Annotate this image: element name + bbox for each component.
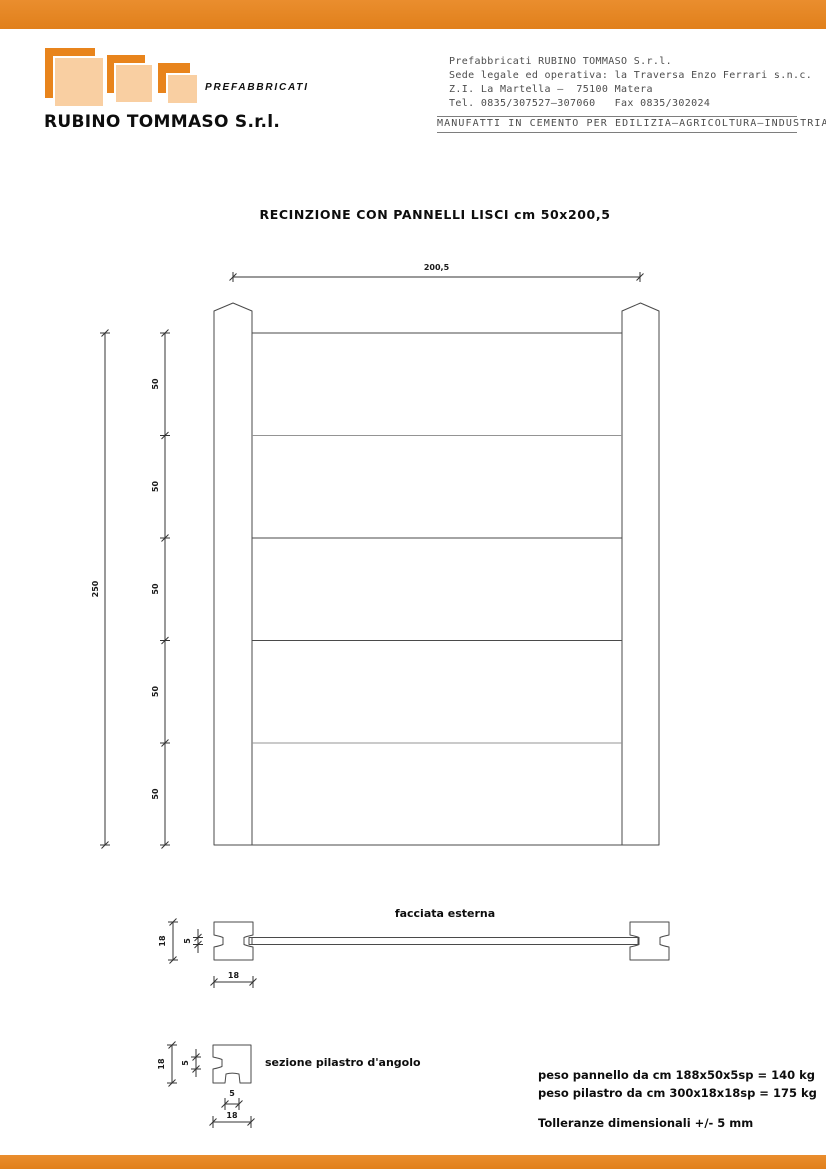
company-contact-block: Prefabbricati RUBINO TOMMASO S.r.l. Sede…	[449, 55, 812, 111]
contact-line-4: Tel. 0835/307527–307060 Fax 0835/302024	[449, 97, 812, 111]
contact-line-2: Sede legale ed operativa: la Traversa En…	[449, 69, 812, 83]
corner-post-section-drawing: 18 5 5 18	[150, 1035, 450, 1135]
left-post	[214, 303, 252, 845]
segment-dimensions: 50 50 50 50 50	[151, 330, 170, 849]
contact-line-3: Z.I. La Martella – 75100 Matera	[449, 83, 812, 97]
corner-width-dimension: 18	[210, 1111, 255, 1128]
left-post-section	[214, 922, 253, 960]
brand-name: RUBINO TOMMASO S.r.l.	[44, 112, 280, 132]
corner-notch-label: 5	[181, 1060, 190, 1066]
facade-panel-thickness-dimension: 5	[183, 929, 203, 953]
logo-square-large-front	[53, 56, 105, 108]
corner-width-label: 18	[226, 1111, 238, 1120]
corner-notch-dimension: 5	[181, 1049, 201, 1077]
fence-elevation-drawing: 200,5 250	[80, 255, 680, 855]
sector-rule-bottom	[437, 132, 797, 133]
facade-plan-section-drawing: 18 5 18	[150, 900, 690, 1000]
corner-slot-width-dimension: 5	[222, 1089, 243, 1110]
segment-dim-label-1: 50	[151, 378, 160, 390]
facade-post-width-label: 18	[228, 971, 240, 980]
sector-tagline: MANUFATTI IN CEMENTO PER EDILIZIA–AGRICO…	[437, 118, 797, 129]
panel-strip-section	[249, 938, 638, 945]
sector-rule-top	[437, 116, 797, 117]
brand-tagline: PREFABBRICATI	[205, 82, 309, 93]
corner-post-section-shape	[213, 1045, 251, 1083]
facade-panel-thickness-label: 5	[183, 938, 192, 944]
drawing-title: RECINZIONE CON PANNELLI LISCI cm 50x200,…	[135, 207, 735, 222]
corner-height-label: 18	[157, 1058, 166, 1070]
datasheet-page: PREFABBRICATI RUBINO TOMMASO S.r.l. Pref…	[0, 0, 826, 1169]
logo-square-small-front	[166, 73, 199, 105]
header-accent-bar	[0, 0, 826, 29]
facade-post-height-label: 18	[158, 935, 167, 947]
footer-accent-bar	[0, 1155, 826, 1169]
corner-height-dimension: 18	[157, 1042, 177, 1087]
weight-notes: peso pannello da cm 188x50x5sp = 140 kg …	[538, 1067, 817, 1102]
post-weight-note: peso pilastro da cm 300x18x18sp = 175 kg	[538, 1085, 817, 1103]
panel-lines	[252, 333, 622, 845]
panel-weight-note: peso pannello da cm 188x50x5sp = 140 kg	[538, 1067, 817, 1085]
segment-dim-label-4: 50	[151, 686, 160, 698]
corner-slot-width-label: 5	[229, 1089, 235, 1098]
logo-square-medium-front	[114, 63, 154, 104]
segment-dim-label-2: 50	[151, 481, 160, 493]
total-height-dimension: 250	[91, 330, 110, 849]
width-dimension-label: 200,5	[424, 263, 450, 272]
tolerance-note: Tolleranze dimensionali +/- 5 mm	[538, 1116, 753, 1130]
total-height-label: 250	[91, 580, 100, 597]
facade-post-width-dimension: 18	[211, 971, 257, 988]
contact-line-1: Prefabbricati RUBINO TOMMASO S.r.l.	[449, 55, 812, 69]
right-post	[622, 303, 659, 845]
facade-post-height-dimension: 18	[158, 919, 178, 964]
segment-dim-label-5: 50	[151, 788, 160, 800]
width-dimension: 200,5	[230, 263, 644, 282]
segment-dim-label-3: 50	[151, 583, 160, 595]
